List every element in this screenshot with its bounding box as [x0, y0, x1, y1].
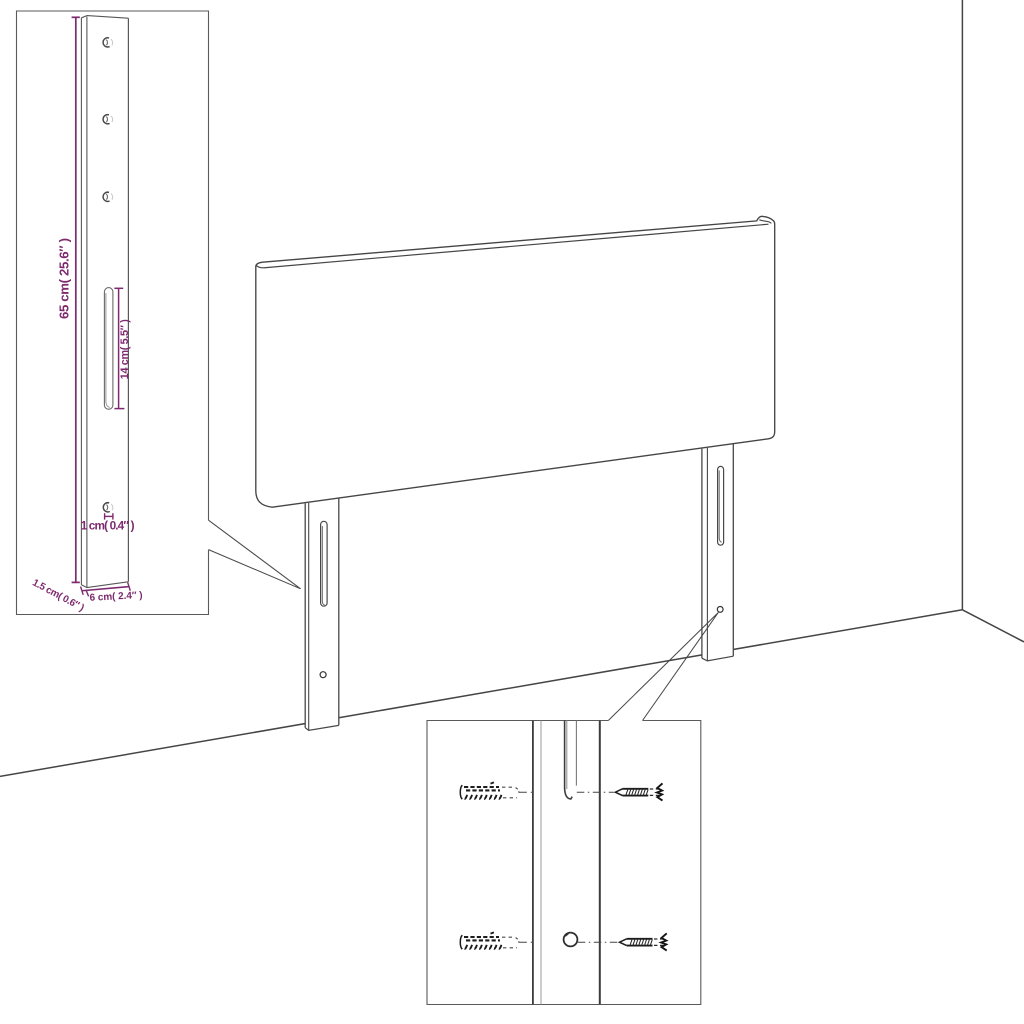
svg-text:65 cm( 25.6″ ): 65 cm( 25.6″ ) [57, 238, 72, 319]
svg-text:14 cm( 5.5″ ): 14 cm( 5.5″ ) [119, 319, 131, 379]
svg-text:1 cm( 0.4″ ): 1 cm( 0.4″ ) [81, 518, 135, 532]
